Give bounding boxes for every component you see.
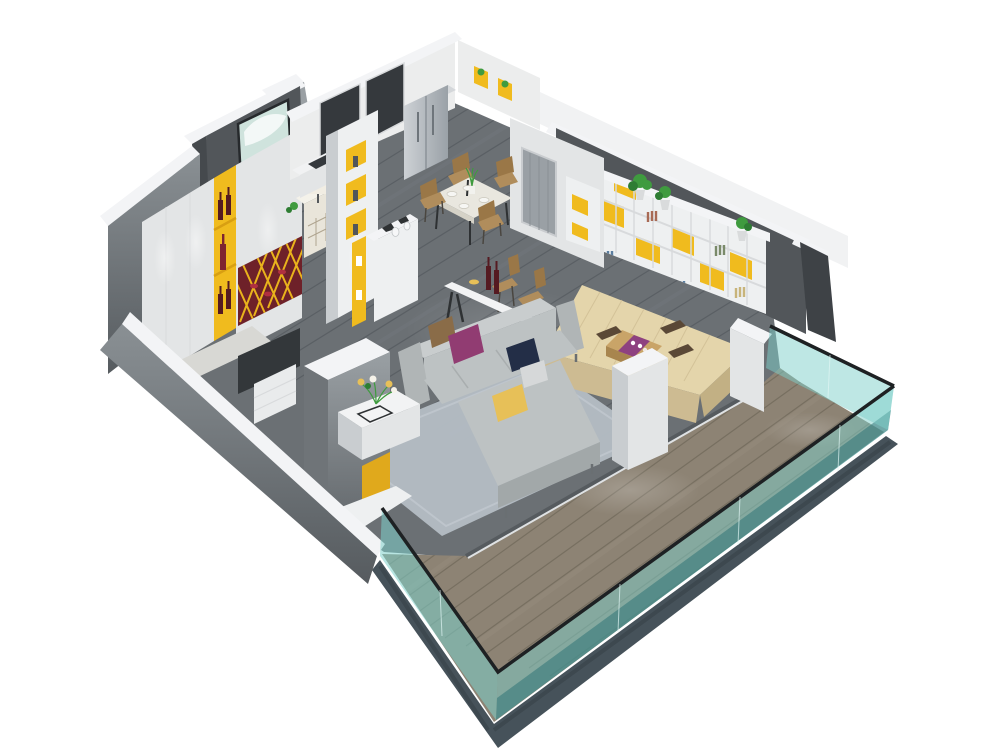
tulip (386, 381, 393, 388)
niche-plant-2 (502, 81, 509, 88)
apartment-render (0, 0, 1000, 750)
wine-display-niche (214, 165, 236, 341)
display-side-yellow (352, 236, 366, 327)
tulip (358, 379, 365, 386)
cabinet-spotlight-1 (154, 230, 176, 286)
plant-leaf (286, 207, 292, 213)
pillar-front (628, 358, 668, 470)
interior-door (522, 148, 556, 236)
plant-foliage (628, 181, 638, 191)
plate (479, 198, 489, 203)
lattice-wine-3 (278, 270, 286, 275)
plant-foliage (744, 223, 752, 231)
niche-plant-1 (478, 69, 485, 76)
stool-back (508, 254, 520, 276)
pillar-side (612, 366, 628, 470)
books-olive (716, 245, 724, 256)
tulip-leaf (365, 383, 371, 389)
tulip (370, 376, 377, 383)
bar-fruit-plate (469, 280, 479, 285)
flower-vase (469, 186, 475, 194)
tulip (391, 387, 397, 393)
tea-cup (638, 344, 642, 348)
column-side (326, 130, 338, 324)
plant-foliage (655, 192, 663, 200)
books-sand (736, 287, 744, 298)
plate (459, 204, 469, 209)
lattice-wine-2 (264, 292, 272, 297)
lattice-wine-1 (250, 284, 258, 289)
tea-cup (631, 341, 635, 345)
stool-back (534, 267, 546, 289)
platform-pillar (612, 348, 668, 470)
plate (447, 192, 457, 197)
cabinet-spotlight-2 (185, 214, 207, 270)
apartment-scene (0, 0, 1000, 750)
plant-foliage (642, 180, 652, 190)
